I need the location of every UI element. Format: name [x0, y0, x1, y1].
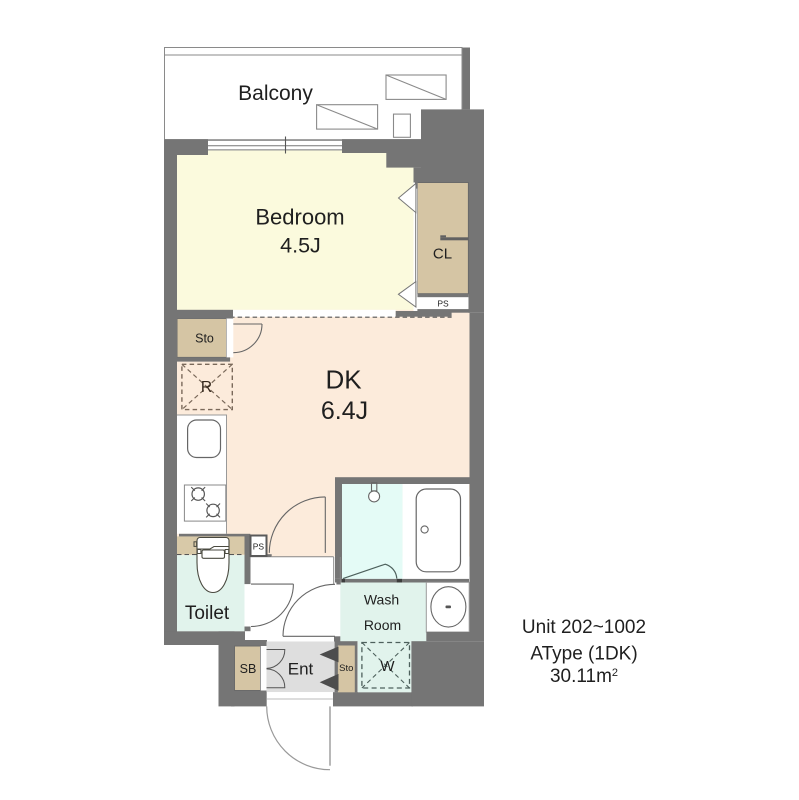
svg-text:AType (1DK): AType (1DK) [530, 643, 637, 664]
svg-text:R: R [201, 379, 212, 396]
svg-text:Ent: Ent [288, 659, 314, 678]
svg-text:Wash: Wash [364, 592, 399, 608]
svg-text:PS: PS [437, 299, 449, 309]
svg-text:SB: SB [240, 662, 257, 676]
svg-text:Bedroom: Bedroom [255, 205, 344, 230]
svg-text:Room: Room [364, 617, 401, 633]
svg-text:Sto: Sto [339, 663, 353, 674]
svg-text:Toilet: Toilet [185, 603, 230, 624]
svg-text:Balcony: Balcony [238, 82, 313, 105]
svg-text:Sto: Sto [195, 332, 214, 346]
svg-text:Unit 202~1002: Unit 202~1002 [522, 617, 646, 638]
svg-text:CL: CL [433, 245, 452, 262]
svg-text:6.4J: 6.4J [321, 397, 368, 425]
svg-text:DK: DK [325, 365, 362, 395]
svg-text:4.5J: 4.5J [280, 234, 321, 258]
svg-text:W: W [380, 658, 395, 675]
svg-text:30.11m2: 30.11m2 [550, 666, 618, 687]
svg-text:PS: PS [253, 542, 265, 552]
